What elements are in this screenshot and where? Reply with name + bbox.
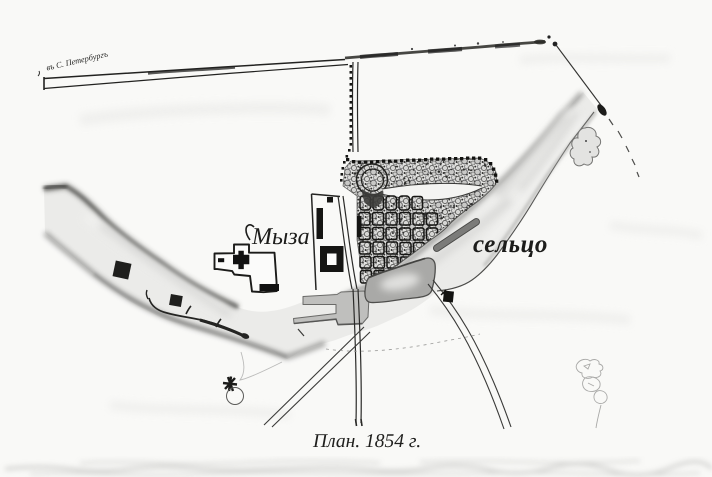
svg-text:сельцо: сельцо	[473, 231, 548, 258]
svg-text:Мыза: Мыза	[251, 224, 310, 250]
svg-text:План. 1854 г.: План. 1854 г.	[312, 431, 421, 452]
